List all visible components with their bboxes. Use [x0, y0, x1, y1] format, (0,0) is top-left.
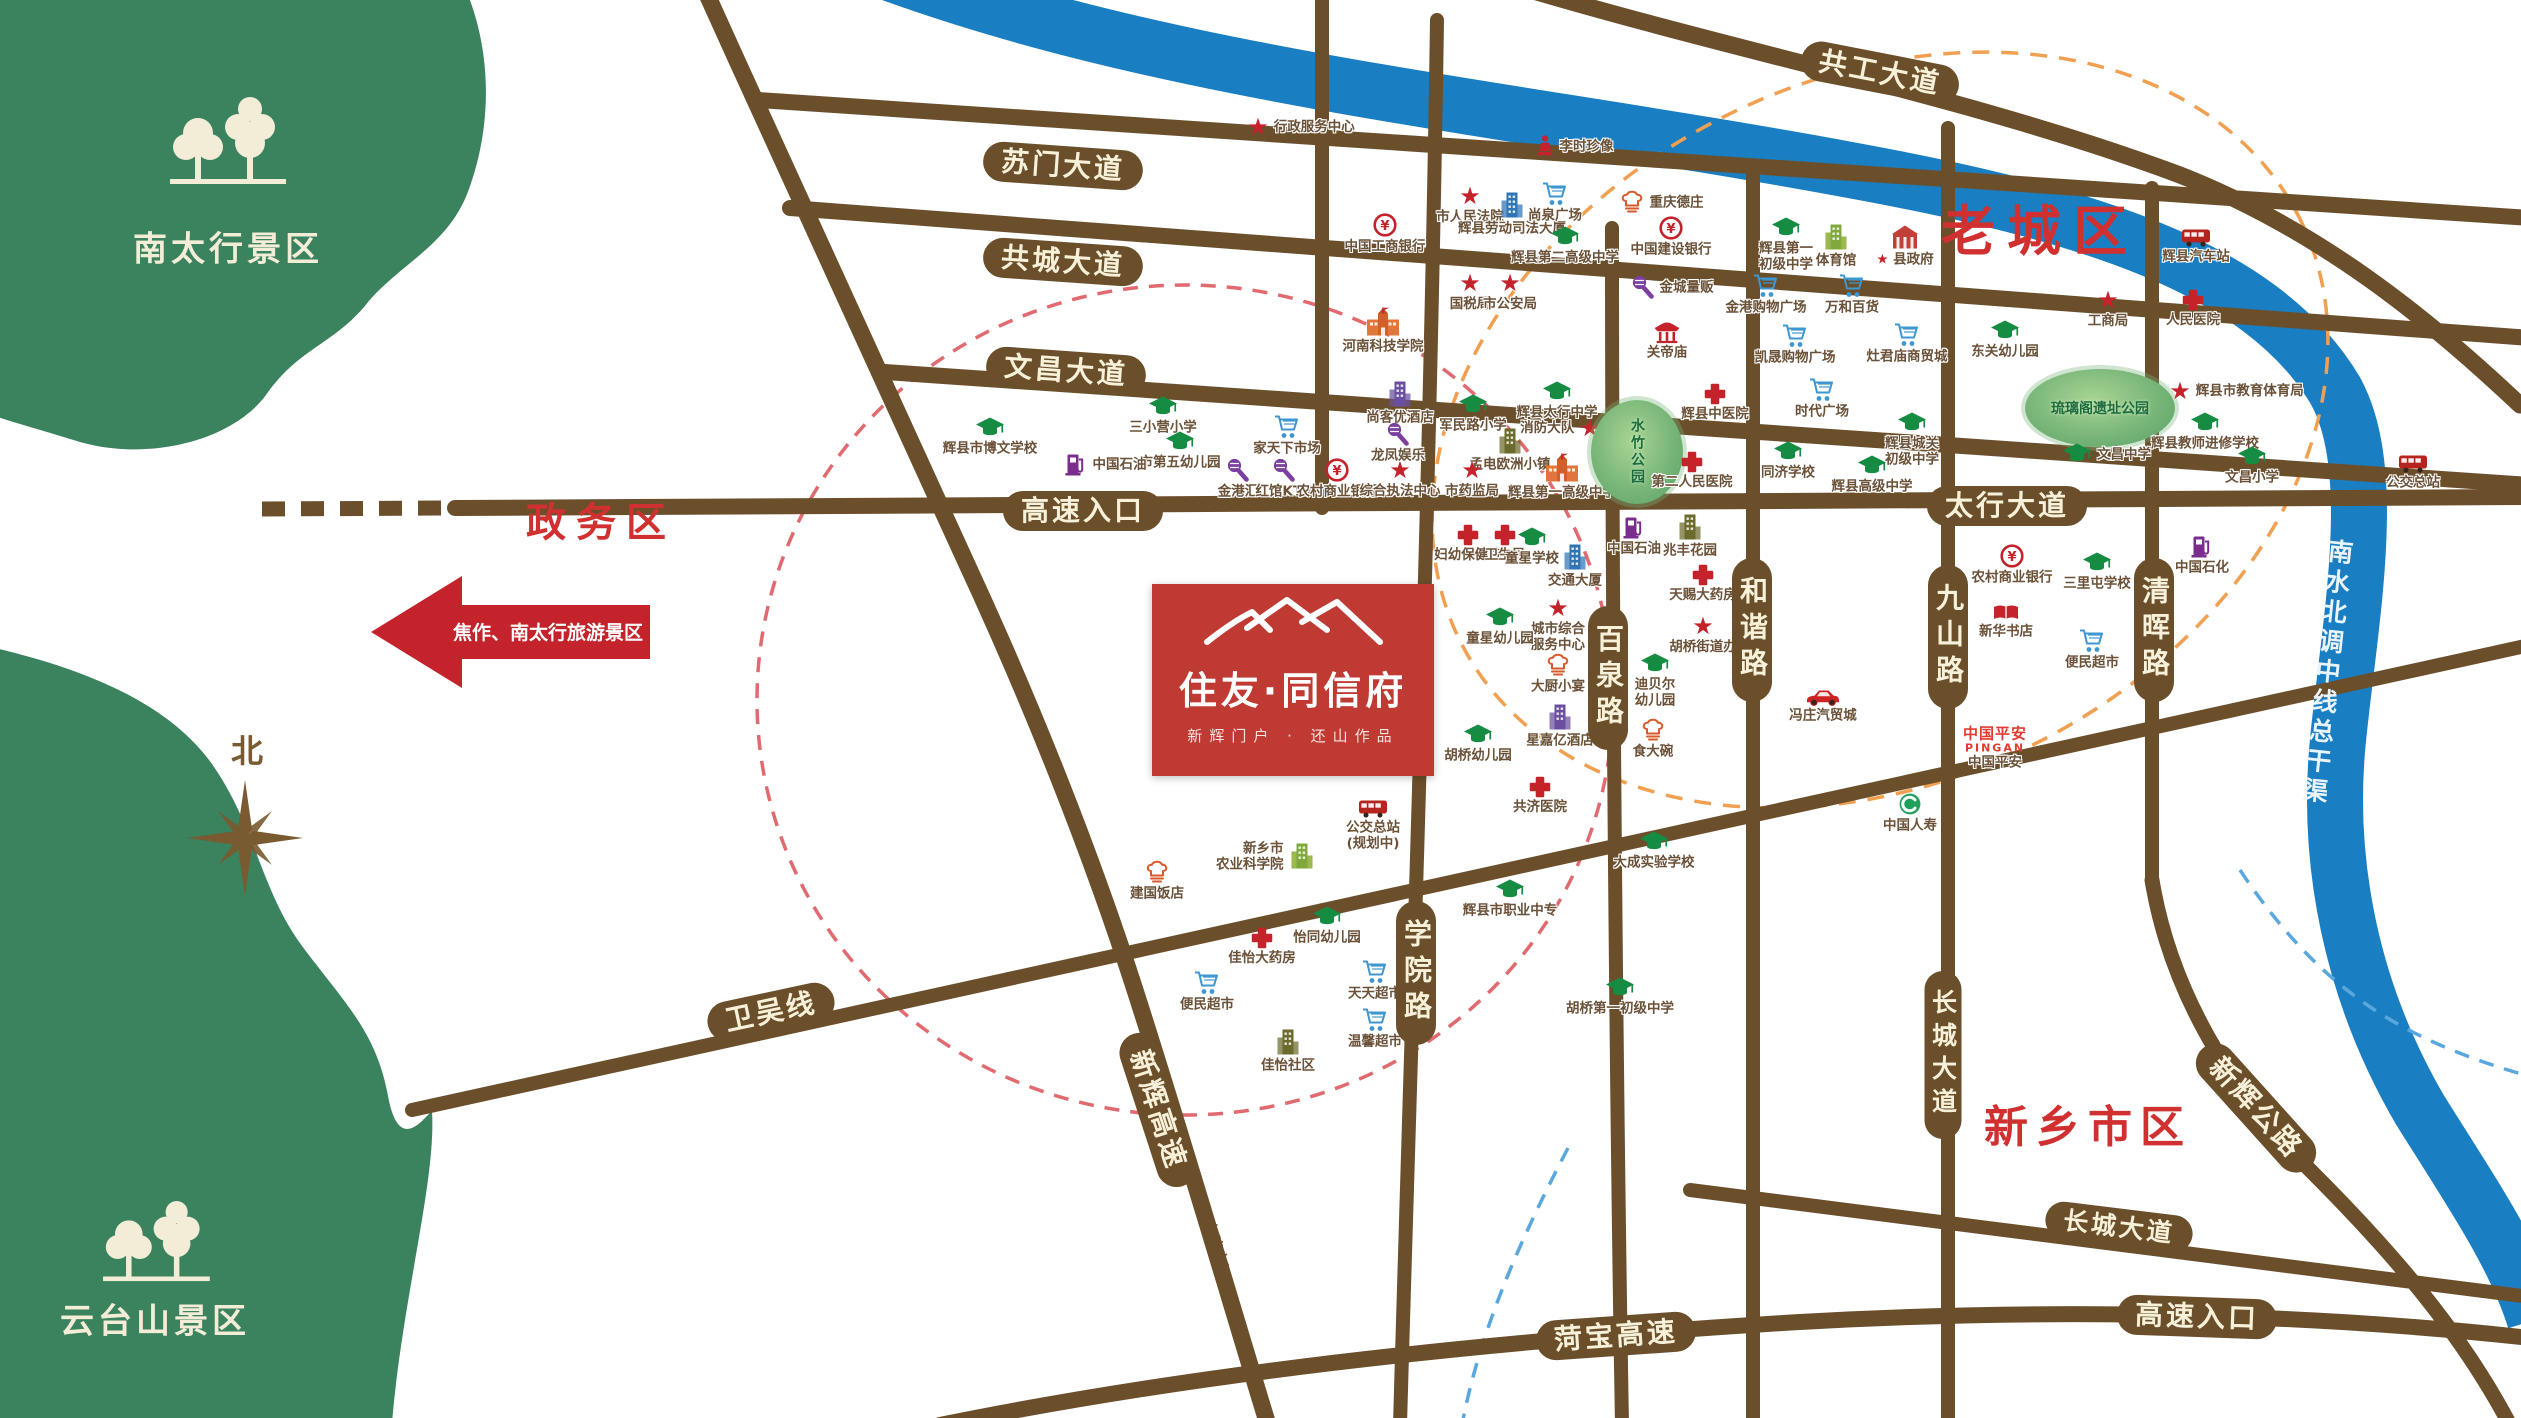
- arrow-text: 焦作、南太行旅游景区: [443, 618, 653, 645]
- school-icon: [1640, 653, 1670, 676]
- star-icon: ★: [1547, 596, 1569, 620]
- poi-label: 辉县第一高级中学: [1508, 485, 1616, 501]
- poi-star: ★市药监局: [1461, 458, 1483, 482]
- poi-school_bldg: 河南科技学院: [1365, 307, 1401, 338]
- poi-shop: 凯晟购物广场: [1782, 324, 1808, 349]
- poi-shop: 家天下市场: [1274, 415, 1300, 440]
- road-label: 太行大道: [1927, 486, 2087, 526]
- poi-label: 万和百货: [1825, 300, 1879, 316]
- poi-label: 辉县城关初级中学: [1885, 436, 1939, 468]
- poi-build_purple: 星嘉亿酒店: [1547, 703, 1574, 732]
- ring-blue-dashed-b: [1462, 1148, 1568, 1418]
- star-icon: ★: [1499, 271, 1521, 295]
- star-icon: ★: [1692, 614, 1714, 638]
- shop-icon: [1894, 323, 1920, 348]
- poi-bus: 公交总站(规划中): [1358, 798, 1388, 819]
- poi-label: 市公安局: [1483, 296, 1537, 312]
- poi-label: 中国平安: [1968, 755, 2022, 771]
- poi-shop: 灶君庙商贸城: [1894, 323, 1920, 348]
- poi-star: ★胡桥街道办: [1692, 614, 1714, 638]
- poi-school: 市第五幼儿园: [1165, 431, 1195, 454]
- poi-label: 怡同幼儿园: [1293, 930, 1361, 946]
- poi-label: 中国石化: [2175, 560, 2229, 576]
- poi-food: 食大碗: [1641, 718, 1666, 743]
- poi-label: 尚泉广场: [1528, 208, 1582, 224]
- poi-shop: 尚泉广场: [1542, 182, 1568, 207]
- poi-label: ★ 县政府: [1876, 252, 1933, 268]
- poi-car: 冯庄汽贸城: [1805, 688, 1841, 707]
- school-icon: [2082, 552, 2112, 575]
- poi-label: 行政服务中心: [1274, 119, 1355, 135]
- poi-star: ★国税局: [1459, 271, 1481, 295]
- project-name: 住友·同信府: [1152, 660, 1434, 715]
- poi-shop: 温馨超市: [1362, 1008, 1388, 1033]
- poi-gov: ★ 县政府: [1889, 224, 1921, 251]
- bank-icon: ¥: [2000, 544, 2025, 569]
- poi-ktv: 龙凤娱乐: [1387, 422, 1410, 447]
- food-icon: [1546, 653, 1571, 678]
- ktv-icon: [1227, 458, 1250, 483]
- school-icon: [1485, 607, 1515, 630]
- poi-label: 辉县第一初级中学: [1759, 241, 1813, 273]
- poi-school: 辉县城关初级中学: [1897, 412, 1927, 435]
- poi-label: 中国建设银行: [1631, 242, 1712, 258]
- hospital-icon: [1457, 524, 1479, 546]
- poi-label: 农村商业银行: [1972, 570, 2053, 586]
- school-icon: [1605, 977, 1635, 1000]
- star-icon: ★: [1461, 458, 1483, 482]
- svg-text:¥: ¥: [1380, 219, 1389, 234]
- bus-icon: [2181, 227, 2211, 248]
- build_blue-icon: [1499, 191, 1526, 220]
- poi-school: 三里屯学校: [2082, 552, 2112, 575]
- build_olive-icon: [1275, 1028, 1302, 1057]
- poi-label: 中国石油: [1093, 456, 1147, 472]
- poi-gas: 中国石油: [1623, 515, 1646, 540]
- poi-label: 李时珍像: [1560, 138, 1614, 154]
- poi-label: 人民医院: [2166, 312, 2220, 328]
- shop-icon: [2079, 629, 2105, 654]
- poi-bank: ¥中国工商银行: [1373, 213, 1398, 238]
- map-stage: 南太行景区 云台山景区 南水北调中线总干渠 北 焦作、南太行旅游景区 住友·同信…: [0, 0, 2521, 1418]
- hospital-icon: [1251, 927, 1273, 949]
- shop-icon: [1362, 1008, 1388, 1033]
- poi-pingan: 中国平安PINGAN中国平安: [1963, 726, 2027, 753]
- poi-label: 天赐大药房: [1669, 587, 1737, 603]
- scenic-label-yuntaishan: 云台山景区: [60, 1294, 250, 1343]
- gas-icon: [1623, 515, 1646, 540]
- ktv-icon: [1273, 458, 1296, 483]
- poi-label: 金城量贩: [1660, 279, 1714, 295]
- hospital-icon: [2182, 289, 2204, 311]
- school-icon: [1639, 831, 1669, 854]
- poi-gas: 中国石油: [1065, 452, 1088, 477]
- poi-label: 辉县第二高级中学: [1511, 250, 1619, 266]
- poi-bank: ¥中国建设银行: [1659, 216, 1684, 241]
- road-label: 九山路: [1928, 565, 1968, 709]
- poi-school: 辉县市职业中专: [1495, 879, 1525, 902]
- car-icon: [1805, 688, 1841, 707]
- poi-temple: 关帝庙: [1654, 321, 1681, 344]
- poi-school: 文昌小学: [2237, 446, 2267, 469]
- school-icon: [2237, 446, 2267, 469]
- build_green-icon: [1823, 223, 1850, 252]
- build_purple-icon: [1547, 703, 1574, 732]
- school-icon: [1463, 724, 1493, 747]
- build_olive-icon: [1497, 427, 1524, 456]
- poi-label: 胡桥街道办: [1669, 639, 1737, 655]
- school-icon: [1542, 381, 1572, 404]
- poi-school: 军民路小学: [1458, 394, 1488, 417]
- star-icon: ★: [1459, 271, 1481, 295]
- poi-label: 三里屯学校: [2063, 576, 2131, 592]
- poi-label: 食大碗: [1633, 744, 1674, 760]
- poi-label: 消防大队: [1520, 420, 1574, 436]
- zone-label: 新乡市区: [1984, 1106, 2192, 1150]
- poi-build_blue: 辉县劳动司法大厦: [1499, 191, 1526, 220]
- school-icon: [1550, 226, 1580, 249]
- poi-label: 共济医院: [1513, 799, 1567, 815]
- poi-label: 大厨小宴: [1531, 679, 1585, 695]
- poi-star: ★城市综合服务中心: [1547, 596, 1569, 620]
- poi-label: 家天下市场: [1253, 441, 1321, 457]
- poi-label: 兆丰花园: [1663, 543, 1717, 559]
- poi-label: 迪贝尔幼儿园: [1635, 677, 1676, 709]
- road-label: 长城大道: [1925, 971, 1962, 1139]
- poi-label: 文昌小学: [2225, 470, 2279, 486]
- shop-icon: [1542, 182, 1568, 207]
- poi-label: 童星学校: [1505, 551, 1559, 567]
- build_green-icon: [1289, 842, 1316, 871]
- poi-book: 新华书店: [1993, 604, 2020, 623]
- poi-star: ★工商局: [2097, 288, 2119, 312]
- poi-bus: 辉县汽车站: [2181, 227, 2211, 248]
- zone-label: 老城区: [1941, 205, 2139, 259]
- poi-label: 工商局: [2088, 313, 2129, 329]
- poi-star: ★行政服务中心: [1247, 115, 1269, 139]
- poi-school: 童星学校: [1517, 527, 1547, 550]
- bus-icon: [2398, 453, 2428, 474]
- road-label: 高速入口: [2116, 1294, 2277, 1340]
- poi-label: 新华书店: [1979, 624, 2033, 640]
- shop-icon: [1782, 324, 1808, 349]
- poi-label: 交通大厦: [1548, 573, 1602, 589]
- build_olive-icon: [1677, 513, 1704, 542]
- poi-label: 温馨超市: [1348, 1034, 1402, 1050]
- ktv-icon: [1632, 275, 1655, 300]
- school_bldg-icon: [1544, 453, 1580, 484]
- poi-shop: 便民超市: [2079, 629, 2105, 654]
- ktv-icon: [1387, 422, 1410, 447]
- poi-school: 东关幼儿园: [1990, 320, 2020, 343]
- poi-school: 文昌中学: [2062, 443, 2092, 466]
- poi-label: 辉县高级中学: [1832, 479, 1913, 495]
- school-icon: [1148, 396, 1178, 419]
- poi-label: 佳怡社区: [1261, 1058, 1315, 1074]
- zone-label: 政务区: [526, 503, 676, 543]
- temple-icon: [1654, 321, 1681, 344]
- poi-label: 建国饭店: [1130, 886, 1184, 902]
- star-icon: ★: [1247, 115, 1269, 139]
- shop-icon: [1274, 415, 1300, 440]
- book-icon: [1993, 604, 2020, 623]
- gov-icon: [1889, 224, 1921, 251]
- star-icon: ★: [2169, 379, 2191, 403]
- poi-food: 建国饭店: [1145, 860, 1170, 885]
- shop-icon: [1753, 274, 1779, 299]
- poi-label: 文昌中学: [2097, 446, 2151, 462]
- hospital-icon: [1529, 776, 1551, 798]
- poi-build_green: 新乡市农业科学院: [1289, 842, 1316, 871]
- poi-label: 体育馆: [1816, 253, 1857, 269]
- poi-label: 金港汇: [1218, 484, 1259, 500]
- food-icon: [1620, 190, 1645, 215]
- road-label: 学院路: [1396, 901, 1436, 1045]
- bank-icon: ¥: [1325, 458, 1350, 483]
- poi-label: 佳怡大药房: [1228, 950, 1296, 966]
- bank-icon: ¥: [1373, 213, 1398, 238]
- bus-icon: [1358, 798, 1388, 819]
- poi-food: 大厨小宴: [1546, 653, 1571, 678]
- poi-label: 童星幼儿园: [1466, 631, 1534, 647]
- poi-label: 便民超市: [1180, 997, 1234, 1013]
- poi-shop: 时代广场: [1809, 378, 1835, 403]
- road-label: 清晖路: [2134, 558, 2174, 702]
- poi-label: 天天超市: [1348, 986, 1402, 1002]
- school-icon: [1458, 394, 1488, 417]
- poi-hospital: 人民医院: [2182, 289, 2204, 311]
- poi-label: 中国石油: [1607, 541, 1661, 557]
- poi-hospital: 第二人民医院: [1681, 451, 1703, 473]
- poi-gas: 中国石化: [2191, 534, 2214, 559]
- poi-ktv: 红馆KTV: [1273, 458, 1296, 483]
- poi-label: 时代广场: [1795, 404, 1849, 420]
- poi-school: 辉县第一初级中学: [1771, 217, 1801, 240]
- poi-label: 水竹公园: [1627, 418, 1647, 486]
- poi-label: 便民超市: [2065, 655, 2119, 671]
- poi-label: 大成实验学校: [1614, 855, 1695, 871]
- poi-shop: 金港购物广场: [1753, 274, 1779, 299]
- hospital-icon: [1704, 383, 1726, 405]
- school-icon: [1897, 412, 1927, 435]
- poi-hospital: 卫生局: [1494, 524, 1516, 546]
- pingan-icon: 中国平安PINGAN: [1963, 726, 2027, 753]
- hospital-icon: [1692, 564, 1714, 586]
- poi-label: 河南科技学院: [1343, 339, 1424, 355]
- school-icon: [2062, 443, 2092, 466]
- school-icon: [2190, 412, 2220, 435]
- shop-icon: [1839, 274, 1865, 299]
- poi-school_bldg: 辉县第一高级中学: [1544, 453, 1580, 484]
- road-label: 高速入口: [1003, 491, 1163, 531]
- school-icon: [1990, 320, 2020, 343]
- svg-text:¥: ¥: [1332, 464, 1341, 479]
- poi-school: 辉县市博文学校: [975, 417, 1005, 440]
- school_bldg-icon: [1365, 307, 1401, 338]
- school-icon: [1165, 431, 1195, 454]
- poi-label: 重庆德庄: [1650, 194, 1704, 210]
- poi-shop: 天天超市: [1362, 960, 1388, 985]
- poi-build_purple: 尚客优酒店: [1387, 380, 1414, 409]
- school-icon: [1517, 527, 1547, 550]
- statue-icon: [1536, 135, 1555, 158]
- poi-hospital: 佳怡大药房: [1251, 927, 1273, 949]
- poi-label: 市药监局: [1445, 483, 1499, 499]
- poi-label: 公交总站(规划中): [1346, 820, 1400, 852]
- poi-school: 怡同幼儿园: [1312, 906, 1342, 929]
- poi-label: 辉县中医院: [1681, 406, 1749, 422]
- poi-shop: 万和百货: [1839, 274, 1865, 299]
- svg-text:¥: ¥: [2007, 550, 2016, 565]
- poi-label: 市第五幼儿园: [1140, 455, 1221, 471]
- road-label: 百泉路: [1588, 606, 1628, 750]
- poi-build_green: 体育馆: [1823, 223, 1850, 252]
- shop-icon: [1194, 971, 1220, 996]
- poi-build_olive: 孟电欧洲小镇: [1497, 427, 1524, 456]
- hospital-icon: [1494, 524, 1516, 546]
- poi-label: 综合执法中心: [1359, 483, 1440, 499]
- road-label: 和谐路: [1732, 558, 1772, 702]
- poi-life: 中国人寿: [1898, 792, 1923, 817]
- poi-statue: 李时珍像: [1536, 135, 1555, 158]
- school-icon: [975, 417, 1005, 440]
- compass-north-label: 北: [231, 726, 263, 772]
- poi-school: 胡桥幼儿园: [1463, 724, 1493, 747]
- poi-label: 关帝庙: [1647, 345, 1688, 361]
- build_purple-icon: [1387, 380, 1414, 409]
- poi-label: 同济学校: [1761, 465, 1815, 481]
- poi-label: 辉县汽车站: [2162, 249, 2230, 265]
- poi-bank: ¥农村商业银行: [2000, 544, 2025, 569]
- poi-ktv: 金港汇: [1227, 458, 1250, 483]
- poi-school: 辉县教师进修学校: [2190, 412, 2220, 435]
- shop-icon: [1809, 378, 1835, 403]
- poi-school: 迪贝尔幼儿园: [1640, 653, 1670, 676]
- build_blue-icon: [1562, 543, 1589, 572]
- poi-school: 三小营小学: [1148, 396, 1178, 419]
- school-icon: [1771, 217, 1801, 240]
- school-icon: [1495, 879, 1525, 902]
- school-icon: [1773, 441, 1803, 464]
- poi-hospital: 辉县中医院: [1704, 383, 1726, 405]
- project-tagline: 新辉门户 · 还山作品: [1152, 725, 1434, 746]
- poi-ktv: 金城量贩: [1632, 275, 1655, 300]
- poi-label: 第二人民医院: [1652, 474, 1733, 490]
- poi-label: 中国人寿: [1883, 818, 1937, 834]
- poi-hospital: 妇幼保健院: [1457, 524, 1479, 546]
- poi-school: 童星幼儿园: [1485, 607, 1515, 630]
- poi-label: 金港购物广场: [1726, 300, 1807, 316]
- school-icon: [1857, 455, 1887, 478]
- gas-icon: [2191, 534, 2214, 559]
- poi-label: 琉璃阁遗址公园: [2051, 398, 2149, 418]
- bank-icon: ¥: [1659, 216, 1684, 241]
- poi-build_olive: 兆丰花园: [1677, 513, 1704, 542]
- poi-food: 重庆德庄: [1620, 190, 1645, 215]
- poi-star: ★市公安局: [1499, 271, 1521, 295]
- school-icon: [1312, 906, 1342, 929]
- food-icon: [1145, 860, 1170, 885]
- poi-label: 城市综合服务中心: [1531, 621, 1585, 653]
- poi-label: 中国工商银行: [1345, 239, 1426, 255]
- poi-label: 胡桥第一初级中学: [1566, 1001, 1674, 1017]
- poi-star: ★市人民法院: [1459, 184, 1481, 208]
- poi-bank: ¥农村商业银行: [1325, 458, 1350, 483]
- poi-school: 同济学校: [1773, 441, 1803, 464]
- life-icon: [1898, 792, 1923, 817]
- poi-school: 胡桥第一初级中学: [1605, 977, 1635, 1000]
- logo-mountain-icon: [1152, 584, 1434, 654]
- poi-school: 大成实验学校: [1639, 831, 1669, 854]
- poi-school: 辉县第二高级中学: [1550, 226, 1580, 249]
- svg-text:¥: ¥: [1666, 222, 1675, 237]
- poi-label: 冯庄汽贸城: [1789, 708, 1857, 724]
- poi-hospital: 天赐大药房: [1692, 564, 1714, 586]
- poi-label: 胡桥幼儿园: [1444, 748, 1512, 764]
- gas-icon: [1065, 452, 1088, 477]
- poi-build_blue: 交通大厦: [1562, 543, 1589, 572]
- poi-shop: 便民超市: [1194, 971, 1220, 996]
- poi-school: 辉县高级中学: [1857, 455, 1887, 478]
- poi-hospital: 共济医院: [1529, 776, 1551, 798]
- scenic-label-nantaihang: 南太行景区: [133, 222, 323, 271]
- poi-school: 辉县太行中学: [1542, 381, 1572, 404]
- poi-star: ★辉县市教育体育局: [2169, 379, 2191, 403]
- poi-label: 新乡市农业科学院: [1216, 840, 1284, 872]
- poi-label: 公交总站: [2386, 475, 2440, 491]
- poi-bus: 公交总站: [2398, 453, 2428, 474]
- poi-label: 灶君庙商贸城: [1867, 349, 1948, 365]
- poi-label: 龙凤娱乐: [1371, 448, 1425, 464]
- star-icon: ★: [1459, 184, 1481, 208]
- star-icon: ★: [2097, 288, 2119, 312]
- project-logo: 住友·同信府 新辉门户 · 还山作品: [1152, 584, 1434, 776]
- poi-label: 星嘉亿酒店: [1526, 733, 1594, 749]
- hospital-icon: [1681, 451, 1703, 473]
- poi-label: 凯晟购物广场: [1755, 350, 1836, 366]
- poi-label: 辉县市职业中专: [1463, 903, 1558, 919]
- poi-label: 辉县市博文学校: [943, 441, 1038, 457]
- poi-build_olive: 佳怡社区: [1275, 1028, 1302, 1057]
- poi-label: 辉县市教育体育局: [2196, 383, 2304, 399]
- poi-label: 东关幼儿园: [1971, 344, 2039, 360]
- food-icon: [1641, 718, 1666, 743]
- shop-icon: [1362, 960, 1388, 985]
